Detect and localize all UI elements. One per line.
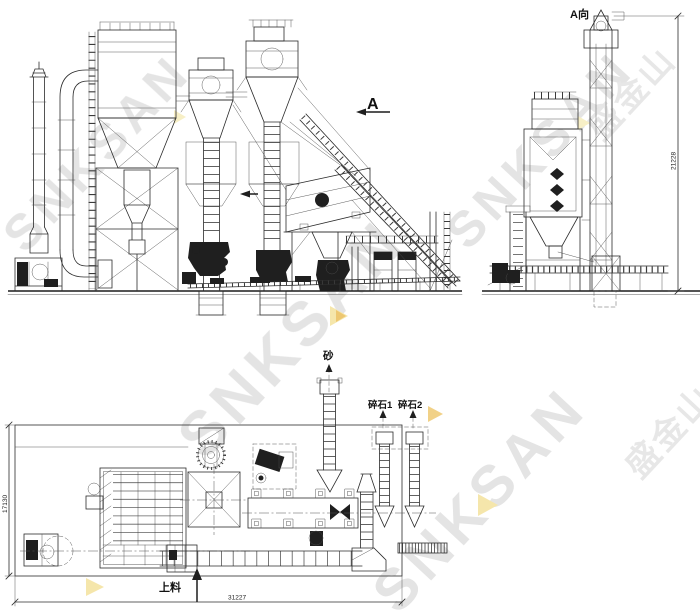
- sand-conveyor-plan: 砂: [317, 349, 342, 492]
- label-sand: 砂: [322, 349, 334, 362]
- crushed-stone-1-conveyor-plan: 碎石1: [368, 399, 394, 527]
- side-view-title: A向: [570, 7, 589, 21]
- induced-draft-fan: [15, 258, 62, 291]
- pump-unit-plan: [253, 444, 296, 489]
- section-label-a: A: [367, 96, 379, 113]
- section-cut-arrow-icon: [240, 191, 258, 198]
- fan-plan: [20, 534, 250, 566]
- view-direction-marker: A: [356, 96, 390, 116]
- sand-arrow-icon: [326, 364, 333, 372]
- discharge-chutes: [233, 88, 370, 190]
- view-direction-arrow-icon: [356, 109, 366, 116]
- watermark-text: SNKSAN: [0, 44, 202, 263]
- label-crushed-stone-1: 碎石1: [368, 399, 393, 411]
- ground-conveyor-side: [488, 256, 668, 307]
- watermark-text-cn: 盛金山: [617, 378, 700, 486]
- plant-general-arrangement-drawing: SNKSAN SNKSAN SNKSAN SNKSAN 盛金山 盛金山: [0, 0, 700, 616]
- feed-marker: 上料: [159, 568, 202, 602]
- technical-drawing-sheet: SNKSAN SNKSAN SNKSAN SNKSAN 盛金山 盛金山: [0, 0, 700, 616]
- watermark-layer: SNKSAN SNKSAN SNKSAN SNKSAN 盛金山 盛金山: [0, 40, 700, 616]
- label-crushed-stone-2: 碎石2: [398, 399, 422, 411]
- tower-footprint-plan: [180, 464, 248, 535]
- crushed-stone-1-arrow-icon: [380, 410, 387, 418]
- watermark-text: SNKSAN: [435, 41, 645, 260]
- dim-text-height: 21228: [671, 152, 678, 170]
- aggregate-bins: [186, 142, 299, 206]
- feed-arrow-icon: [192, 568, 202, 580]
- dimension-17130: 17130: [2, 422, 15, 579]
- crushed-stone-2-arrow-icon: [410, 410, 417, 418]
- bottom-belt-conveyor-plan: [160, 545, 362, 572]
- dim-text-width: 31227: [228, 595, 246, 602]
- dim-text-depth: 17130: [2, 495, 9, 513]
- label-feed: 上料: [159, 580, 181, 594]
- dimension-31227: 31227: [12, 576, 405, 606]
